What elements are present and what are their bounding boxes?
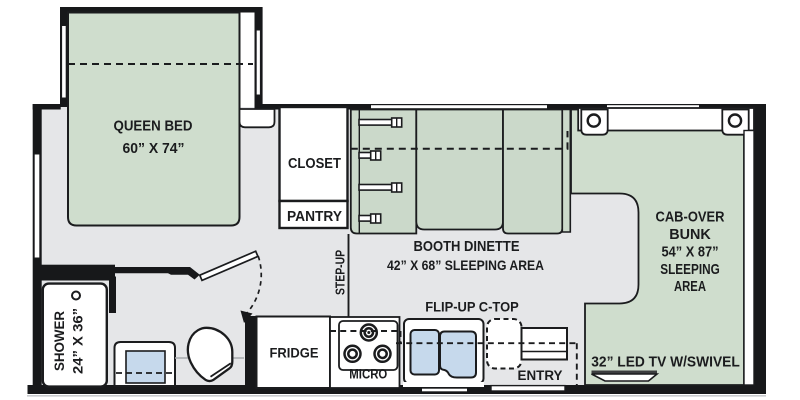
svg-text:PANTRY: PANTRY (287, 209, 342, 225)
svg-text:BUNK: BUNK (669, 226, 711, 243)
svg-text:54” X 87”: 54” X 87” (662, 244, 719, 261)
svg-text:SHOWER: SHOWER (52, 311, 67, 371)
svg-text:CLOSET: CLOSET (288, 156, 341, 172)
svg-text:STEP-UP: STEP-UP (333, 250, 348, 295)
svg-text:QUEEN BED: QUEEN BED (114, 118, 193, 135)
svg-text:SLEEPING: SLEEPING (660, 261, 720, 278)
svg-text:CAB-OVER: CAB-OVER (656, 209, 725, 226)
svg-text:60” X 74”: 60” X 74” (123, 140, 185, 157)
svg-text:24” X 36”: 24” X 36” (71, 308, 86, 374)
svg-text:ENTRY: ENTRY (518, 368, 563, 383)
svg-text:MICRO: MICRO (349, 367, 387, 382)
svg-text:32” LED TV W/SWIVEL: 32” LED TV W/SWIVEL (591, 355, 740, 371)
svg-text:FLIP-UP C-TOP: FLIP-UP C-TOP (425, 299, 519, 315)
svg-text:BOOTH DINETTE: BOOTH DINETTE (414, 238, 520, 255)
svg-text:AREA: AREA (674, 278, 706, 295)
svg-text:42” X 68” SLEEPING AREA: 42” X 68” SLEEPING AREA (387, 257, 544, 273)
svg-text:FRIDGE: FRIDGE (270, 345, 319, 361)
